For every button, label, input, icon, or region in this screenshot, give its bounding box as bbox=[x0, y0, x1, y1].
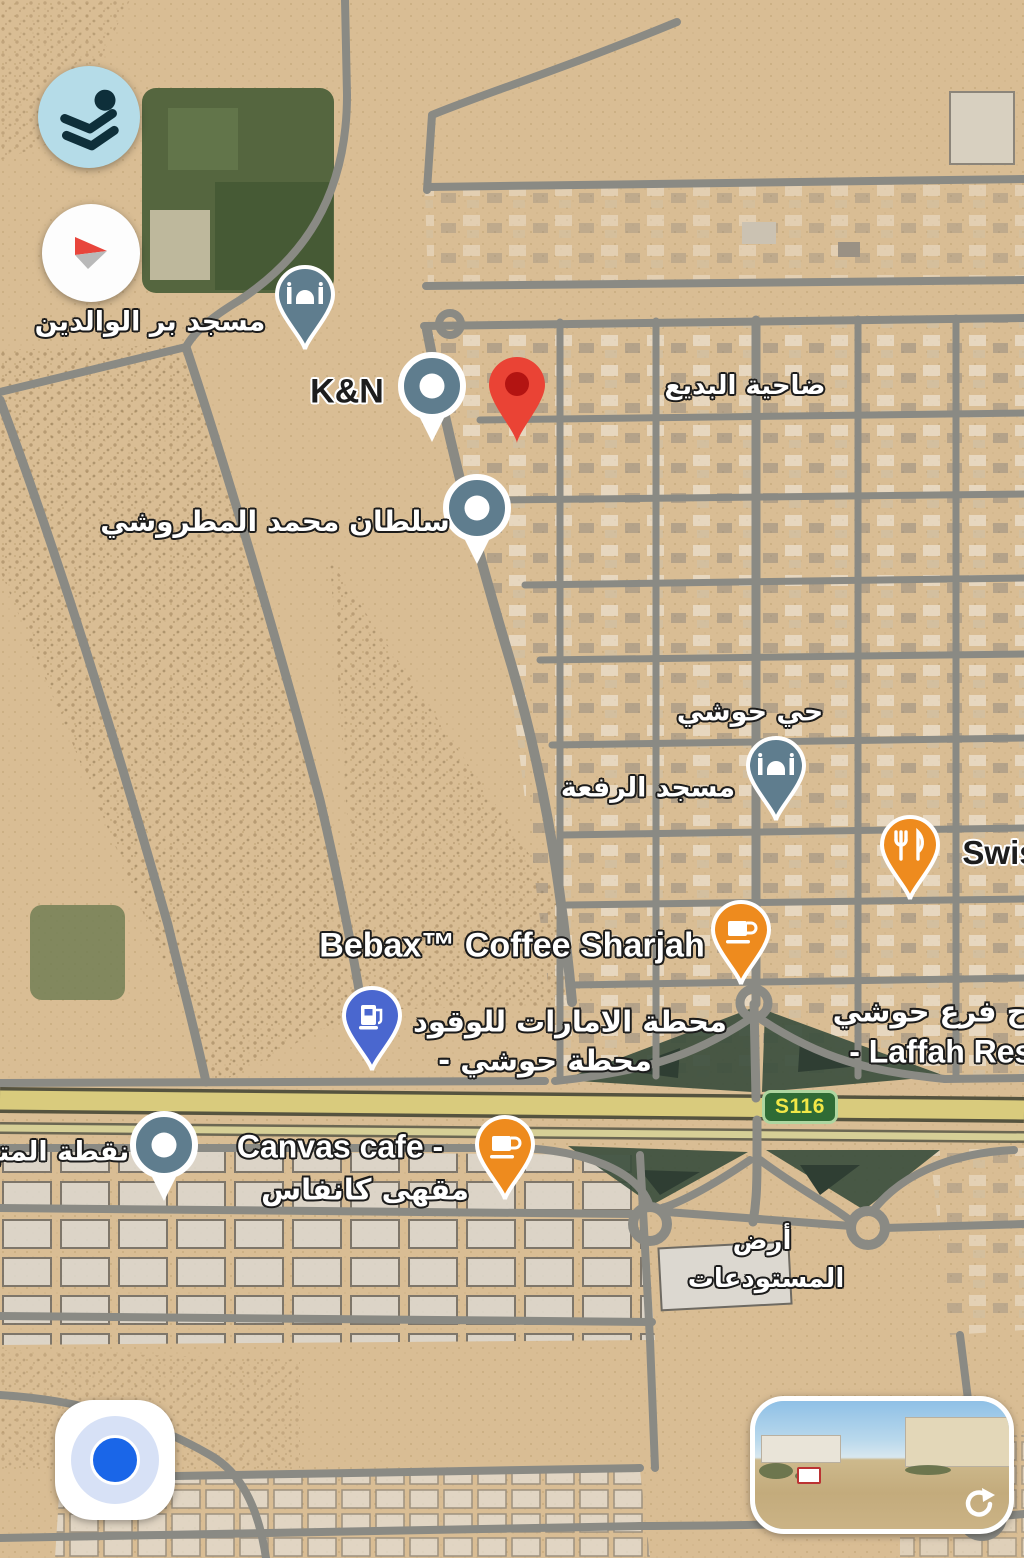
mosque-icon[interactable] bbox=[269, 263, 341, 351]
satellite-imagery bbox=[0, 0, 1024, 1558]
poi-label-bebax-coffee[interactable]: Bebax™ Coffee Sharjah bbox=[319, 926, 704, 965]
poi-label-fuel-station-line1[interactable]: محطة الامارات للوقود bbox=[413, 1005, 727, 1038]
layers-icon bbox=[52, 80, 126, 154]
coffee-cup-icon[interactable] bbox=[705, 898, 777, 986]
road-sign bbox=[797, 1467, 821, 1484]
route-badge-s116: S116 bbox=[762, 1090, 838, 1124]
compass-button[interactable] bbox=[42, 204, 140, 302]
area-label-warehouse-land-line1: أرض bbox=[733, 1227, 792, 1257]
layers-button[interactable] bbox=[38, 66, 140, 168]
fork-knife-icon[interactable] bbox=[874, 813, 946, 901]
poi-dot-icon[interactable] bbox=[124, 1109, 204, 1205]
poi-label-fuel-station-line2[interactable]: - محطة حوشي bbox=[438, 1044, 652, 1077]
poi-label-laffah-line1[interactable]: اح فرع حوشي bbox=[833, 995, 1024, 1028]
poi-label-masjid-alrifaa[interactable]: مسجد الرفعة bbox=[561, 772, 735, 803]
mosque-icon[interactable] bbox=[740, 734, 812, 822]
my-location-button[interactable] bbox=[55, 1400, 175, 1520]
area-label-hay-houshi: حي حوشي bbox=[677, 696, 823, 727]
area-label-warehouse-land-line2: المستودعات bbox=[688, 1265, 844, 1295]
poi-label-swiss[interactable]: Swis bbox=[962, 834, 1024, 872]
street-view-photo bbox=[755, 1401, 1009, 1529]
compass-needle-icon bbox=[63, 225, 119, 281]
red-map-pin-icon[interactable] bbox=[485, 355, 549, 445]
poi-label-laffah-line2[interactable]: - Laffah Resta bbox=[849, 1034, 1024, 1071]
my-location-dot-icon bbox=[90, 1435, 140, 1485]
street-view-refresh-icon bbox=[955, 1487, 999, 1521]
poi-label-canvas-cafe-line1[interactable]: Canvas cafe - bbox=[237, 1129, 443, 1166]
gas-pump-icon[interactable] bbox=[336, 984, 408, 1072]
poi-dot-icon[interactable] bbox=[392, 350, 472, 446]
my-location-ring bbox=[71, 1416, 159, 1504]
street-view-preview[interactable] bbox=[750, 1396, 1014, 1534]
map-canvas[interactable]: ضاحية البديع حي حوشي أرض المستودعات مسجد… bbox=[0, 0, 1024, 1558]
poi-label-kn[interactable]: K&N bbox=[310, 372, 384, 411]
area-label-dahiyat-al-badi: ضاحية البديع bbox=[665, 372, 826, 402]
coffee-cup-icon[interactable] bbox=[469, 1113, 541, 1201]
poi-label-nuqtat-almuta[interactable]: نقطة المتع bbox=[0, 1136, 129, 1167]
poi-label-mosque-bir-alwalidain[interactable]: مسجد بر الوالدين bbox=[35, 306, 266, 337]
poi-label-sultan-mohammed-almatroushi[interactable]: سلطان محمد المطروشي bbox=[100, 506, 449, 538]
poi-label-canvas-cafe-line2[interactable]: مقهى كانفاس bbox=[261, 1173, 469, 1206]
